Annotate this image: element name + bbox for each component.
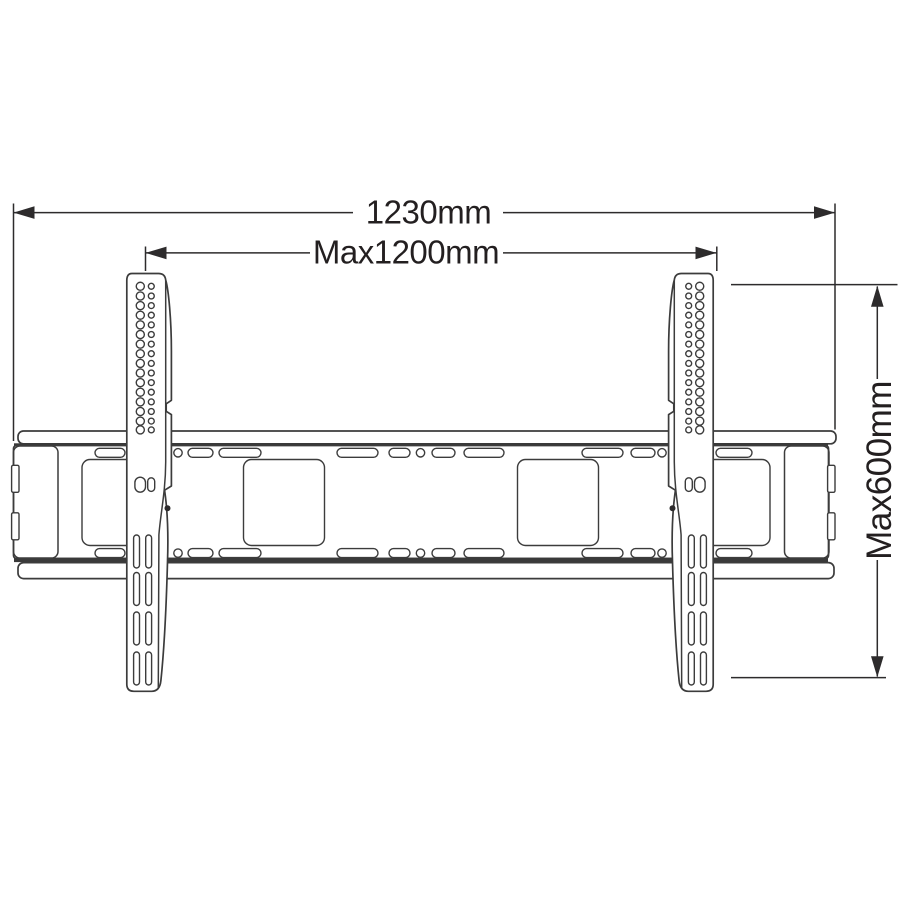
- dim-max-mounting-width-label: Max1200mm: [313, 234, 499, 271]
- dim-max-mounting-height-label: Max600mm: [860, 381, 899, 560]
- dim-overall-width-label: 1230mm: [366, 194, 491, 231]
- dim-max-mounting-width: Max1200mm: [146, 234, 717, 272]
- arrow-right-icon: [696, 247, 717, 260]
- vesa-bracket-right: [669, 274, 714, 692]
- arrow-right-icon: [814, 206, 835, 219]
- arrow-down-icon: [871, 656, 884, 677]
- plate-slot-row-bottom: [95, 549, 752, 558]
- arrow-left-icon: [14, 206, 35, 219]
- wall-mount-dimension-drawing: 1230mm Max1200mm Max600mm: [0, 0, 900, 900]
- vesa-bracket-left: [127, 274, 172, 692]
- arrow-left-icon: [146, 247, 167, 260]
- plate-slot-row-top: [95, 448, 752, 457]
- drawing-canvas: 1230mm Max1200mm Max600mm: [0, 0, 900, 900]
- arrow-up-icon: [871, 286, 884, 307]
